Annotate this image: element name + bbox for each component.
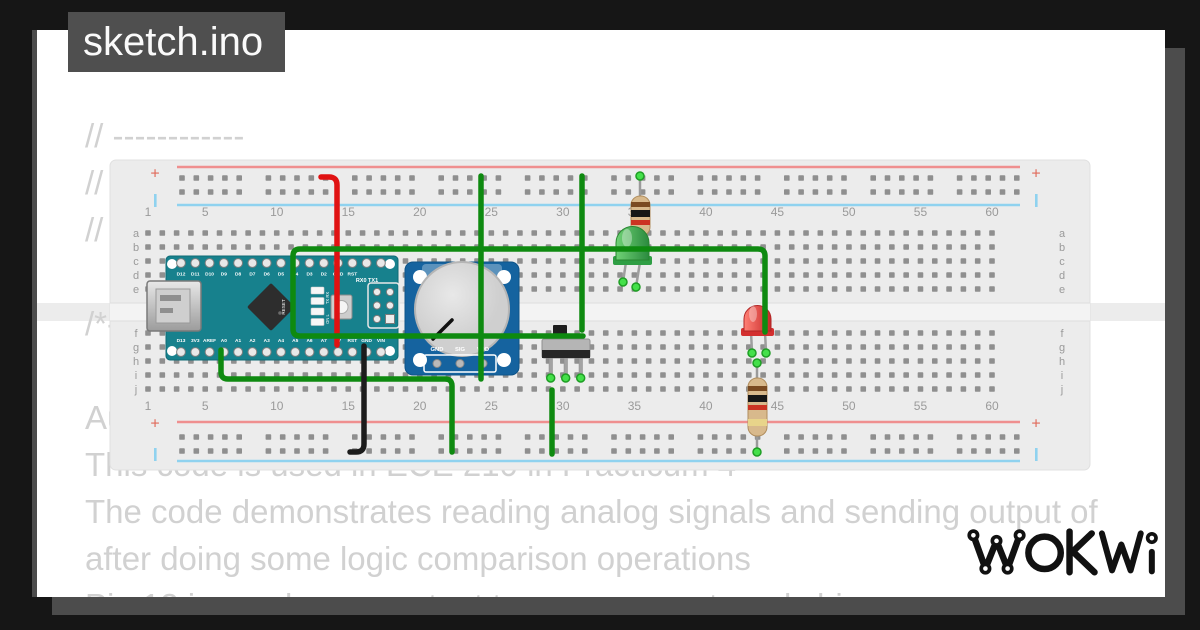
indicator-led [311,298,324,305]
nano-pin-label: D12 [177,272,186,278]
svg-text:10: 10 [270,205,284,219]
svg-text:20: 20 [413,399,427,413]
svg-text:h: h [1059,356,1065,368]
svg-text:g: g [1059,342,1065,354]
svg-text:b: b [133,242,139,254]
resistor-band [748,419,767,426]
nano-pin-label: D7 [249,272,255,278]
nano-pin-label: A0 [221,338,227,344]
nano-pin-label: A6 [306,338,312,344]
preview-page: // ------------// E// -/*--AuThis code i… [32,30,1165,597]
svg-text:a: a [133,228,140,240]
resistor-band [631,202,650,207]
svg-text:55: 55 [914,399,928,413]
svg-text:40: 40 [699,399,713,413]
svg-text:5: 5 [202,399,209,413]
rail-positive-marker: + [150,166,159,183]
mounting-hole [167,259,177,269]
resistor-band [748,386,767,391]
svg-text:45: 45 [771,399,785,413]
nano-pin-label: D5 [278,272,284,278]
nano-pin-label: A1 [235,338,241,344]
svg-text:h: h [133,356,139,368]
svg-text:30: 30 [556,399,570,413]
rail-negative-marker [154,194,157,207]
nano-pin-label: D10 [205,272,214,278]
pot-knob[interactable] [415,262,509,356]
svg-text:15: 15 [342,399,356,413]
logo-letter-k [1070,532,1095,573]
svg-text:c: c [1059,256,1065,268]
nano-pin-label: A2 [249,338,255,344]
indicator-led [311,287,324,294]
rail-positive-marker: + [1031,416,1040,433]
svg-text:55: 55 [914,205,928,219]
led-label: TX RX [325,292,330,305]
code-line: after doing some logic comparison operat… [85,535,1098,582]
nano-pin-label: D8 [235,272,241,278]
usb-connector [147,281,201,331]
file-title: sketch.ino [68,12,285,72]
nano-pin-label: A7 [321,338,327,344]
svg-text:c: c [133,256,139,268]
svg-text:d: d [133,270,139,282]
nano-pin-label: D13 [177,338,186,344]
indicator-led [311,308,324,315]
resistor-band [748,395,767,402]
svg-text:a: a [1059,228,1066,240]
logo-letter-i [1148,534,1156,571]
file-title-tab: sketch.ino [68,12,285,72]
wokwi-preview-card: sketch.ino // ------------// E// -/*--Au… [0,0,1200,630]
svg-text:40: 40 [699,205,713,219]
reset-button[interactable] [331,295,352,319]
svg-text:1: 1 [145,205,152,219]
svg-text:e: e [1059,284,1065,296]
mounting-hole [385,259,395,269]
nano-pin-label: D11 [191,272,200,278]
nano-pin-label: A3 [264,338,270,344]
code-line: The code demonstrates reading analog sig… [85,488,1098,535]
nano-pin-label: VIN [377,338,386,344]
svg-text:60: 60 [985,205,999,219]
svg-text:45: 45 [771,205,785,219]
arduino-nano[interactable]: D12D11D10D9D8D7D6D5D4D3D2GNDRSTRX0 TX1D1… [147,256,399,360]
svg-text:35: 35 [628,399,642,413]
nano-pin-label: RST [348,338,358,344]
svg-text:i: i [135,370,137,382]
wokwi-logo [966,520,1162,582]
mounting-hole [167,346,177,356]
svg-text:25: 25 [485,205,499,219]
resistor-band [748,405,767,410]
svg-text:10: 10 [270,399,284,413]
nano-pin-label: AREF [203,338,216,344]
resistor-band [631,210,650,217]
svg-text:1: 1 [145,399,152,413]
pot-pin-label: GND [431,347,444,353]
rail-positive-marker: + [1031,166,1040,183]
svg-text:30: 30 [556,205,570,219]
svg-text:5: 5 [202,205,209,219]
reset-label: RESET [281,299,286,315]
svg-text:j: j [1060,384,1063,396]
code-line: Pin 12 is used as an output to power an … [85,582,1098,597]
logo-letter-w2 [1102,533,1141,570]
code-line: // ------------ [85,112,1098,159]
nano-pin-label: A4 [278,338,284,344]
nano-pin-label: D6 [264,272,270,278]
nano-pin-label: GND [361,338,372,344]
rail-negative-marker [154,448,157,461]
led-label: ON L [325,313,330,323]
nano-pin-label: D9 [221,272,227,278]
svg-text:25: 25 [485,399,499,413]
resistor-band [631,220,650,225]
svg-text:e: e [133,284,139,296]
svg-text:50: 50 [842,399,856,413]
svg-text:j: j [134,384,137,396]
svg-text:d: d [1059,270,1065,282]
nano-pin-label: D3 [306,272,312,278]
nano-pin-label: D2 [321,272,327,278]
svg-text:20: 20 [413,205,427,219]
rail-negative-marker [1035,194,1038,207]
svg-text:60: 60 [985,399,999,413]
pot-pin-label: SIG [455,347,465,353]
nano-pin-label: RST [348,272,358,278]
svg-text:b: b [1059,242,1065,254]
svg-text:g: g [133,342,139,354]
mounting-hole [497,353,511,367]
svg-text:i: i [1061,370,1063,382]
svg-text:15: 15 [342,205,356,219]
indicator-led [311,319,324,326]
rail-negative-marker [1035,448,1038,461]
nano-pin-label: 3V3 [191,338,200,344]
logo-letter-o [1028,537,1060,569]
nano-pin-label: A5 [292,338,298,344]
mounting-hole [385,346,395,356]
potentiometer-module[interactable]: GNDSIGVDD [405,262,519,375]
rail-positive-marker: + [150,416,159,433]
breadboard-circuit[interactable]: ++++115510101515202025253030353540404545… [110,160,1090,470]
svg-text:50: 50 [842,205,856,219]
